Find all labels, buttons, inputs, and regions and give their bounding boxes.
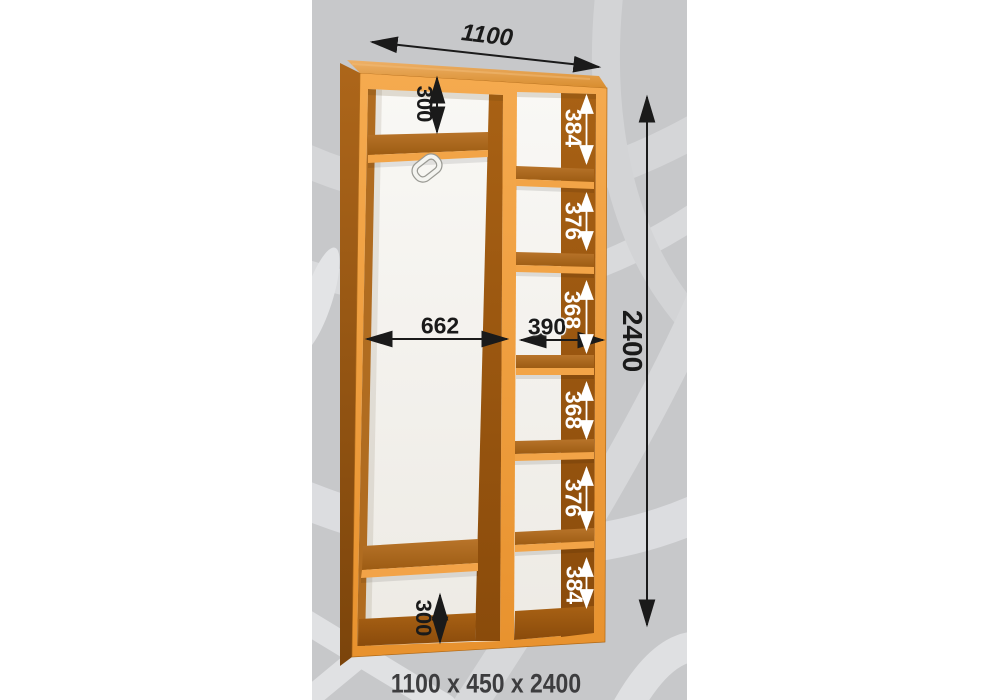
dim-left-bottom-shelf-label: 300 (412, 600, 434, 637)
wardrobe-diagram (0, 0, 1000, 700)
dim-shelf-384b-label: 384 (563, 566, 586, 604)
dim-shelf-368a-label: 368 (561, 291, 584, 329)
shelf-right-4 (515, 439, 594, 465)
dim-shelf-376a-label: 376 (562, 202, 585, 240)
shelf-left-top (368, 132, 488, 168)
shelf-right-2 (516, 252, 594, 278)
dim-shelf-368b-label: 368 (562, 391, 585, 429)
shelf-right-3 (516, 355, 594, 379)
shelf-right-5 (515, 528, 594, 556)
dim-left-top-shelf-label: 300 (413, 86, 435, 123)
right-compartment (514, 92, 596, 640)
shelf-left-bottom (361, 539, 478, 583)
dim-shelf-376b-label: 376 (562, 479, 585, 517)
dim-left-width-label: 662 (421, 315, 459, 338)
shelf-right-1 (516, 166, 594, 193)
left-compartment (357, 89, 503, 646)
size-caption: 1100 x 450 x 2400 (391, 671, 581, 698)
dim-shelf-384a-label: 384 (562, 109, 585, 147)
diagram-canvas: 1100 300 662 390 300 2400 384 376 368 36… (0, 0, 1000, 700)
dim-top-width-label: 1100 (460, 21, 514, 51)
dim-overall-height-label: 2400 (618, 310, 646, 372)
